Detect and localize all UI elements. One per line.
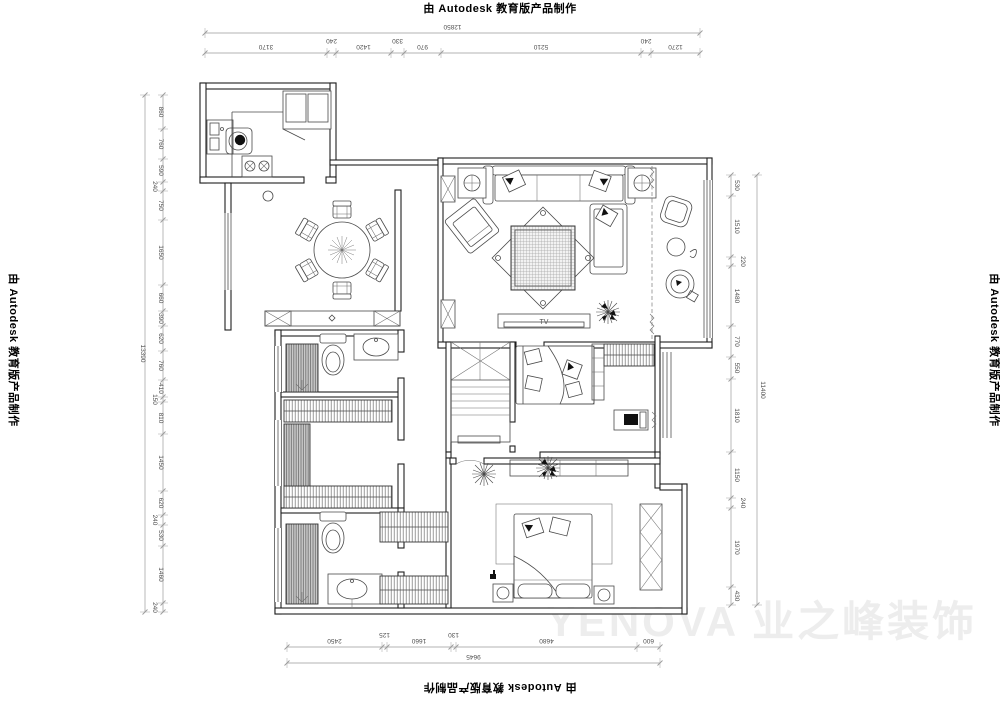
dimension-label: 1650 [157,245,164,260]
dimension-label: 810 [157,413,164,424]
dimension-label: 240 [151,602,158,613]
dimension-label: 2450 [327,637,342,644]
dimension-label: 390 [157,313,164,324]
kitchen-sink-counter [207,120,233,154]
bed [516,346,594,404]
wardrobe-side [284,424,310,486]
closet-room [284,400,392,508]
sink-vanity [354,334,398,360]
dimension-label: 1810 [733,408,740,423]
dimension-label: 240 [640,37,651,44]
dimension-label: 760 [157,139,164,150]
nightstand [493,584,513,602]
coffee-table-carpet [492,207,594,309]
dimension-label: 240 [739,498,746,509]
dimension-label: 620 [157,498,164,509]
stove [242,156,272,177]
dimension-label: 1480 [733,289,740,304]
dimension-label: 750 [157,200,164,211]
table-centerpiece [328,236,356,264]
autodesk-watermark-top: 由 Autodesk 教育版产品制作 [423,1,576,15]
dimension-label: 3170 [258,43,273,50]
fridge [283,91,331,140]
lamp [490,570,496,579]
autodesk-watermark-bottom: 由 Autodesk 教育版产品制作 [423,681,576,695]
dimension-label: 4680 [539,637,554,644]
dimension-label: 11400 [759,381,766,399]
dimension-label: 220 [739,256,746,267]
bedroom-middle [516,344,654,430]
dimension-label: 770 [733,336,740,347]
dimension-label: 12850 [443,23,461,30]
dimension-label: 860 [157,107,164,118]
dimension-label: 5210 [533,43,548,50]
plant [536,456,560,480]
dimension-label: 150 [151,394,158,405]
dimension-label: 1450 [157,455,164,470]
tv-label: TV [540,319,549,326]
plant [596,300,620,324]
dimension-label: 125 [379,631,390,638]
dimension-label: 430 [733,591,740,602]
sideboard [265,311,400,326]
dimension-label: 1270 [668,43,683,50]
dimension-label: 600 [643,637,654,644]
tv-desk [614,410,648,430]
dimension-label: 970 [417,43,428,50]
living-room: TV [441,166,656,340]
sofa [483,166,635,204]
dimension-label: 530 [157,530,164,541]
toilet [320,334,346,375]
dimension-label: 1150 [733,468,740,482]
door-swing [456,460,484,464]
nightstand [594,586,614,604]
ceiling-lamp [263,191,273,201]
floorplan-sheet: YENOVA 业之峰装饰 [0,0,1000,702]
chaise-sofa [590,204,627,274]
dimension-label: 590 [157,165,164,176]
stairs [451,342,510,443]
sink-vanity [328,574,382,607]
bed [514,514,592,598]
tv-cabinet: TV [498,314,590,328]
dimension-label: 1420 [356,43,371,50]
dimension-label: 410 [157,383,164,394]
dimension-label: 130 [448,631,459,638]
dimension-label: 240 [326,37,337,44]
master-bedroom [456,412,662,604]
toilet [320,512,346,553]
bathroom-top [286,334,398,392]
floorplan-drawing: YENOVA 业之峰装饰 [0,0,1000,702]
dimension-label: 13390 [139,344,146,362]
closet-x-strip [640,504,662,590]
dining-room [265,201,400,326]
balcony [659,194,699,302]
corridor [380,512,448,604]
dimension-label: 660 [157,293,164,304]
balcony-chair [659,194,694,228]
dimension-label: 330 [392,37,403,44]
dimension-label: 240 [151,515,158,526]
bathroom-bottom [286,512,382,607]
armchair [444,198,500,254]
side-table [458,168,486,198]
balcony-table [667,238,685,256]
dimension-label: 530 [733,180,740,191]
dimension-label: 1660 [411,637,426,644]
autodesk-watermark-left: 由 Autodesk 教育版产品制作 [7,273,21,426]
balcony-plant [666,270,698,302]
dimension-label: 240 [151,181,158,192]
dimension-label: 760 [157,360,164,371]
dimension-label: 1510 [733,219,740,234]
kettle [690,249,696,257]
dimension-label: 1460 [157,567,164,582]
autodesk-watermark-right: 由 Autodesk 教育版产品制作 [988,273,1000,426]
plant [472,462,496,486]
dimension-label: 9645 [466,653,481,660]
dimension-label: 550 [733,363,740,374]
dimension-label: 1970 [733,540,740,555]
dimension-label: 620 [157,333,164,344]
